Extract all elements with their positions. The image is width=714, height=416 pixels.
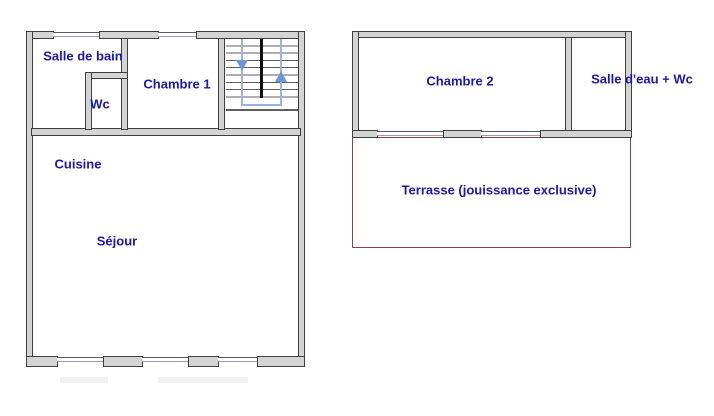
- room-label-sejour: Séjour: [97, 235, 137, 248]
- right-unit-bottom-wall-segment: [540, 130, 632, 138]
- right-unit-bottom-wall-segment: [443, 130, 482, 138]
- right-unit-bottom-window: [481, 131, 541, 136]
- wall-between-chambre-1-and-staircase: [218, 38, 225, 130]
- left-unit-bottom-wall-segment: [26, 356, 58, 367]
- left-unit-top-wall-segment: [196, 31, 305, 39]
- right-unit-left-wall: [352, 31, 359, 138]
- left-unit-right-wall: [298, 31, 305, 367]
- left-unit-bottom-window: [218, 357, 258, 362]
- room-label-chambre-1: Chambre 1: [143, 78, 210, 91]
- stair-path-left: [241, 39, 243, 105]
- right-unit-top-wall: [352, 31, 632, 38]
- left-unit-bottom-wall-segment: [188, 356, 219, 367]
- left-unit-bottom-window: [57, 357, 104, 362]
- stair-divider: [260, 39, 263, 98]
- shadow-artifact: [60, 377, 108, 383]
- left-unit-bottom-window: [142, 357, 189, 362]
- left-unit-top-wall-segment: [99, 31, 159, 39]
- stair-up-arrow-icon: [275, 71, 287, 82]
- room-label-salle-deau-wc: Salle d'eau + Wc: [591, 73, 693, 86]
- room-label-salle-de-bain: Salle de bain: [43, 50, 122, 63]
- right-unit-bottom-window: [377, 131, 444, 136]
- right-unit-bottom-wall-segment: [352, 130, 378, 138]
- left-unit-top-window: [158, 32, 197, 37]
- room-label-chambre-2: Chambre 2: [426, 75, 493, 88]
- wall-between-chambre-2-and-salle-deau: [565, 37, 572, 131]
- stair-path-bottom: [241, 104, 282, 106]
- left-unit-interior-wall-horizontal: [31, 128, 301, 136]
- left-unit-bottom-wall-segment: [103, 356, 143, 367]
- shadow-artifact: [158, 377, 248, 383]
- left-unit-top-window: [53, 32, 100, 37]
- stair-down-arrow-icon: [236, 60, 248, 71]
- room-label-cuisine: Cuisine: [55, 158, 102, 171]
- stair-landing-line: [226, 109, 298, 111]
- left-unit-left-wall: [26, 31, 33, 367]
- room-label-terrasse: Terrasse (jouissance exclusive): [402, 184, 597, 197]
- room-label-wc: Wc: [90, 98, 110, 111]
- floor-plan-canvas: Salle de bain Wc Chambre 1 Cuisine Séjou…: [0, 0, 714, 416]
- left-unit-bottom-wall-segment: [257, 356, 305, 367]
